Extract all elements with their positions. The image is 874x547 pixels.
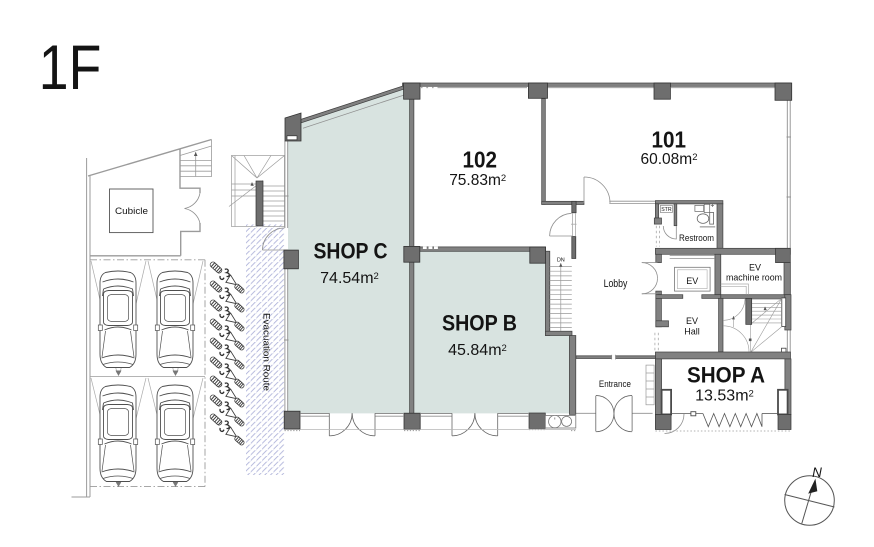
svg-text:EV: EV bbox=[749, 262, 761, 272]
svg-text:13.53m2: 13.53m2 bbox=[695, 388, 754, 405]
svg-text:Entrance: Entrance bbox=[599, 379, 631, 389]
svg-text:EV: EV bbox=[686, 316, 698, 326]
svg-text:Hall: Hall bbox=[684, 326, 700, 336]
svg-text:1F: 1F bbox=[39, 33, 102, 103]
svg-text:45.84m2: 45.84m2 bbox=[448, 342, 507, 359]
svg-text:machine room: machine room bbox=[726, 272, 782, 282]
svg-text:102: 102 bbox=[463, 147, 498, 173]
svg-text:Restroom: Restroom bbox=[679, 233, 714, 243]
svg-text:74.54m2: 74.54m2 bbox=[320, 270, 379, 287]
svg-text:SHOP C: SHOP C bbox=[314, 239, 388, 264]
svg-text:75.83m2: 75.83m2 bbox=[449, 172, 506, 189]
svg-text:EV: EV bbox=[686, 276, 698, 286]
svg-text:SHOP B: SHOP B bbox=[442, 310, 517, 335]
svg-text:101: 101 bbox=[652, 126, 687, 152]
svg-text:Evacuation Route: Evacuation Route bbox=[262, 313, 272, 391]
svg-text:60.08m2: 60.08m2 bbox=[641, 151, 698, 168]
svg-text:N: N bbox=[812, 465, 822, 480]
svg-text:Lobby: Lobby bbox=[604, 278, 628, 290]
svg-text:STR: STR bbox=[661, 207, 672, 213]
svg-text:Cubicle: Cubicle bbox=[115, 206, 148, 216]
svg-text:SHOP A: SHOP A bbox=[687, 363, 765, 388]
svg-text:DN: DN bbox=[557, 258, 565, 264]
